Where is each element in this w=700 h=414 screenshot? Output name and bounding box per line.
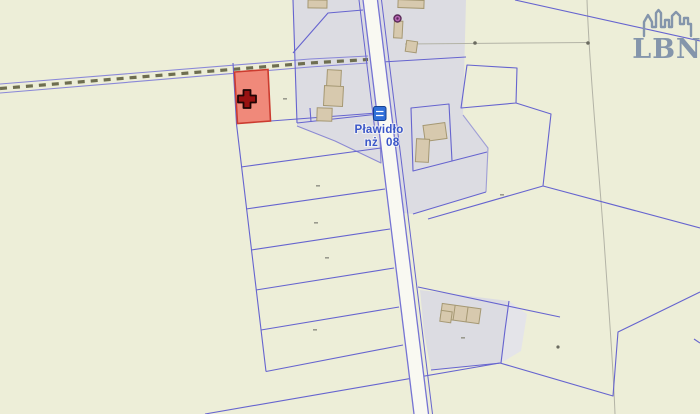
survey-point [556,345,559,348]
building [405,40,417,52]
map-viewport[interactable]: Pławidło nż 08 LBN [0,0,700,414]
tick-mark [461,337,465,339]
built-area-farmstead [420,290,509,370]
building [415,139,429,163]
building [327,70,342,88]
place-label-code-right: 08 [386,137,400,149]
tick-mark [283,98,287,100]
survey-point [586,41,590,45]
building [398,0,424,8]
building [323,86,343,107]
selected-parcel[interactable] [235,70,271,124]
logo-text: LBN [632,34,700,65]
building [317,108,332,122]
tick-mark [325,257,329,259]
place-label-code-left: nż [365,137,378,149]
bus-stop-icon[interactable] [374,107,387,121]
survey-point [473,41,477,45]
tick-mark [313,329,317,331]
bus-stop-sign [374,107,387,121]
poi-dot-inner [396,17,398,19]
building [440,310,452,322]
building [423,123,447,142]
place-label-name: Pławidło [354,124,403,136]
tick-mark [314,222,318,224]
tick-mark [500,194,504,196]
poi-dot-icon[interactable] [394,15,401,22]
building [308,0,327,8]
tick-mark [316,185,320,187]
building [394,21,403,38]
map-canvas[interactable]: Pławidło nż 08 LBN [0,0,700,414]
